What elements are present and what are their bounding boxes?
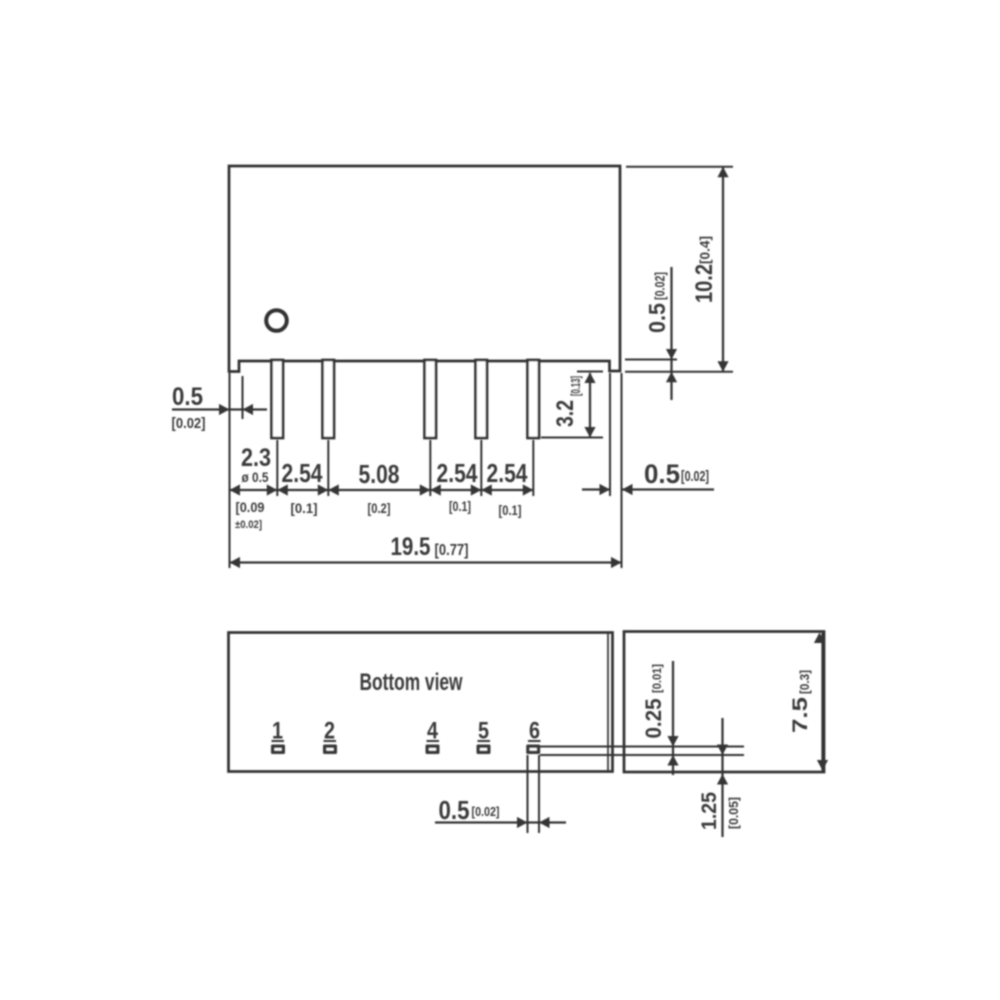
- svg-text:[0.1]: [0.1]: [291, 500, 318, 516]
- svg-text:5.08: 5.08: [359, 459, 400, 489]
- svg-text:4: 4: [427, 718, 439, 745]
- svg-text:0.25: 0.25: [641, 699, 666, 739]
- svg-text:[0.1]: [0.1]: [499, 502, 522, 518]
- svg-text:19.5: 19.5: [391, 533, 431, 561]
- svg-text:0.5: 0.5: [644, 303, 670, 333]
- svg-text:2.3: 2.3: [241, 444, 271, 472]
- svg-text:6: 6: [529, 718, 540, 745]
- svg-text:1.25: 1.25: [698, 792, 721, 830]
- svg-text:[0.4]: [0.4]: [697, 236, 713, 264]
- svg-text:[0.02]: [0.02]: [653, 272, 668, 300]
- svg-text:0.5: 0.5: [172, 383, 203, 411]
- svg-text:[0.3]: [0.3]: [797, 670, 812, 694]
- svg-text:2.54: 2.54: [282, 458, 323, 488]
- svg-text:0.5: 0.5: [439, 795, 470, 825]
- svg-text:[0.02]: [0.02]: [681, 468, 709, 485]
- svg-text:[0.02]: [0.02]: [172, 415, 206, 432]
- svg-text:[0.01]: [0.01]: [650, 664, 664, 693]
- svg-text:ø 0.5: ø 0.5: [242, 469, 269, 485]
- svg-text:5: 5: [478, 718, 489, 745]
- svg-text:3.2: 3.2: [552, 400, 579, 427]
- svg-text:[0.02]: [0.02]: [472, 804, 500, 819]
- svg-text:±0.02]: ±0.02]: [235, 519, 262, 531]
- svg-text:2.54: 2.54: [437, 458, 478, 488]
- svg-text:[0.13]: [0.13]: [568, 376, 583, 396]
- svg-text:[0.1]: [0.1]: [449, 498, 471, 514]
- svg-text:[0.77]: [0.77]: [435, 542, 469, 559]
- svg-text:[0.05]: [0.05]: [726, 797, 741, 829]
- svg-text:[0.09: [0.09: [236, 499, 265, 515]
- svg-text:Bottom view: Bottom view: [360, 669, 463, 696]
- svg-text:2: 2: [324, 718, 335, 745]
- svg-text:7.5: 7.5: [789, 697, 812, 733]
- svg-text:10.2: 10.2: [691, 264, 718, 303]
- svg-text:0.5: 0.5: [644, 459, 680, 489]
- svg-text:[0.2]: [0.2]: [368, 500, 391, 516]
- svg-text:1: 1: [272, 718, 283, 745]
- svg-text:2.54: 2.54: [487, 458, 528, 488]
